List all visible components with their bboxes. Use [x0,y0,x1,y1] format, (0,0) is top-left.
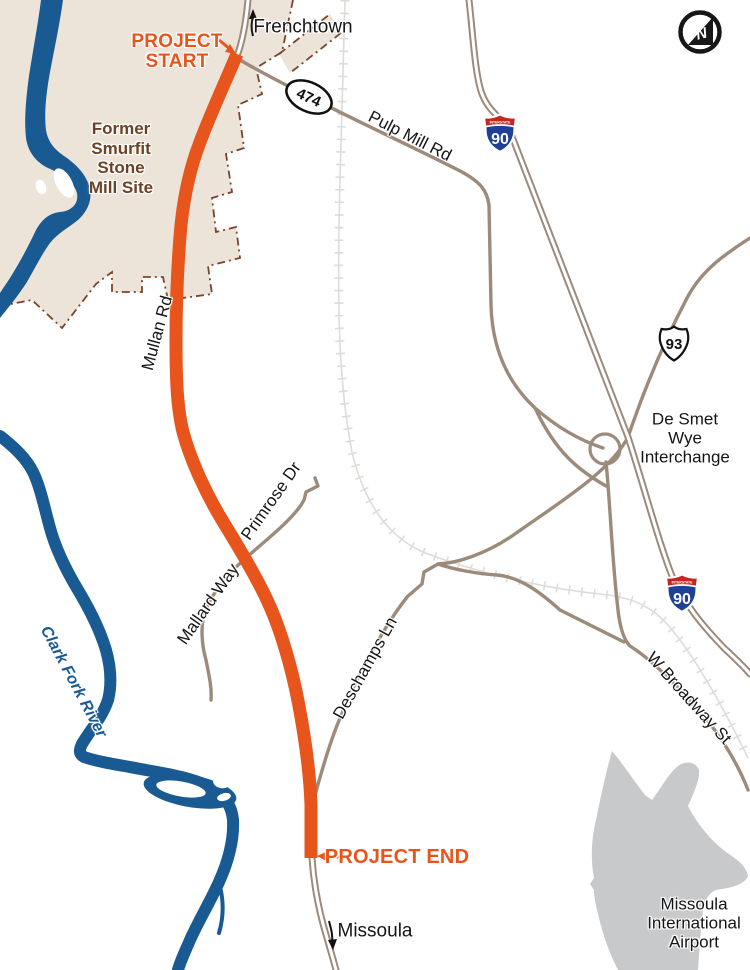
north-arrow-icon: N [681,13,720,52]
us93-shield: 93 [660,327,689,361]
railroad-line [339,0,748,758]
svg-text:INTERSTATE: INTERSTATE [672,580,694,584]
route-474-shield: 474 [281,74,337,121]
interchange-loop [590,434,620,464]
w-broadway-path [606,462,748,790]
roads-minor [202,60,750,795]
svg-text:90: 90 [491,131,509,148]
map-canvas: 474 INTERSTATE 90 INTERSTATE 90 93 N [0,0,750,970]
i90-path [469,0,750,674]
i90-shield-south: INTERSTATE 90 [664,573,700,613]
project-route-highlight [176,54,311,858]
svg-text:93: 93 [666,336,683,353]
pulp-mill-rd-path [240,60,603,448]
frontage-link-path [438,564,624,642]
airport-area [590,751,748,970]
svg-text:INTERSTATE: INTERSTATE [490,120,512,124]
deschamps-ln-path [315,564,438,795]
us93-road-path [438,238,750,564]
svg-text:90: 90 [673,591,691,608]
project-map: 474 INTERSTATE 90 INTERSTATE 90 93 N Fre… [0,0,750,970]
